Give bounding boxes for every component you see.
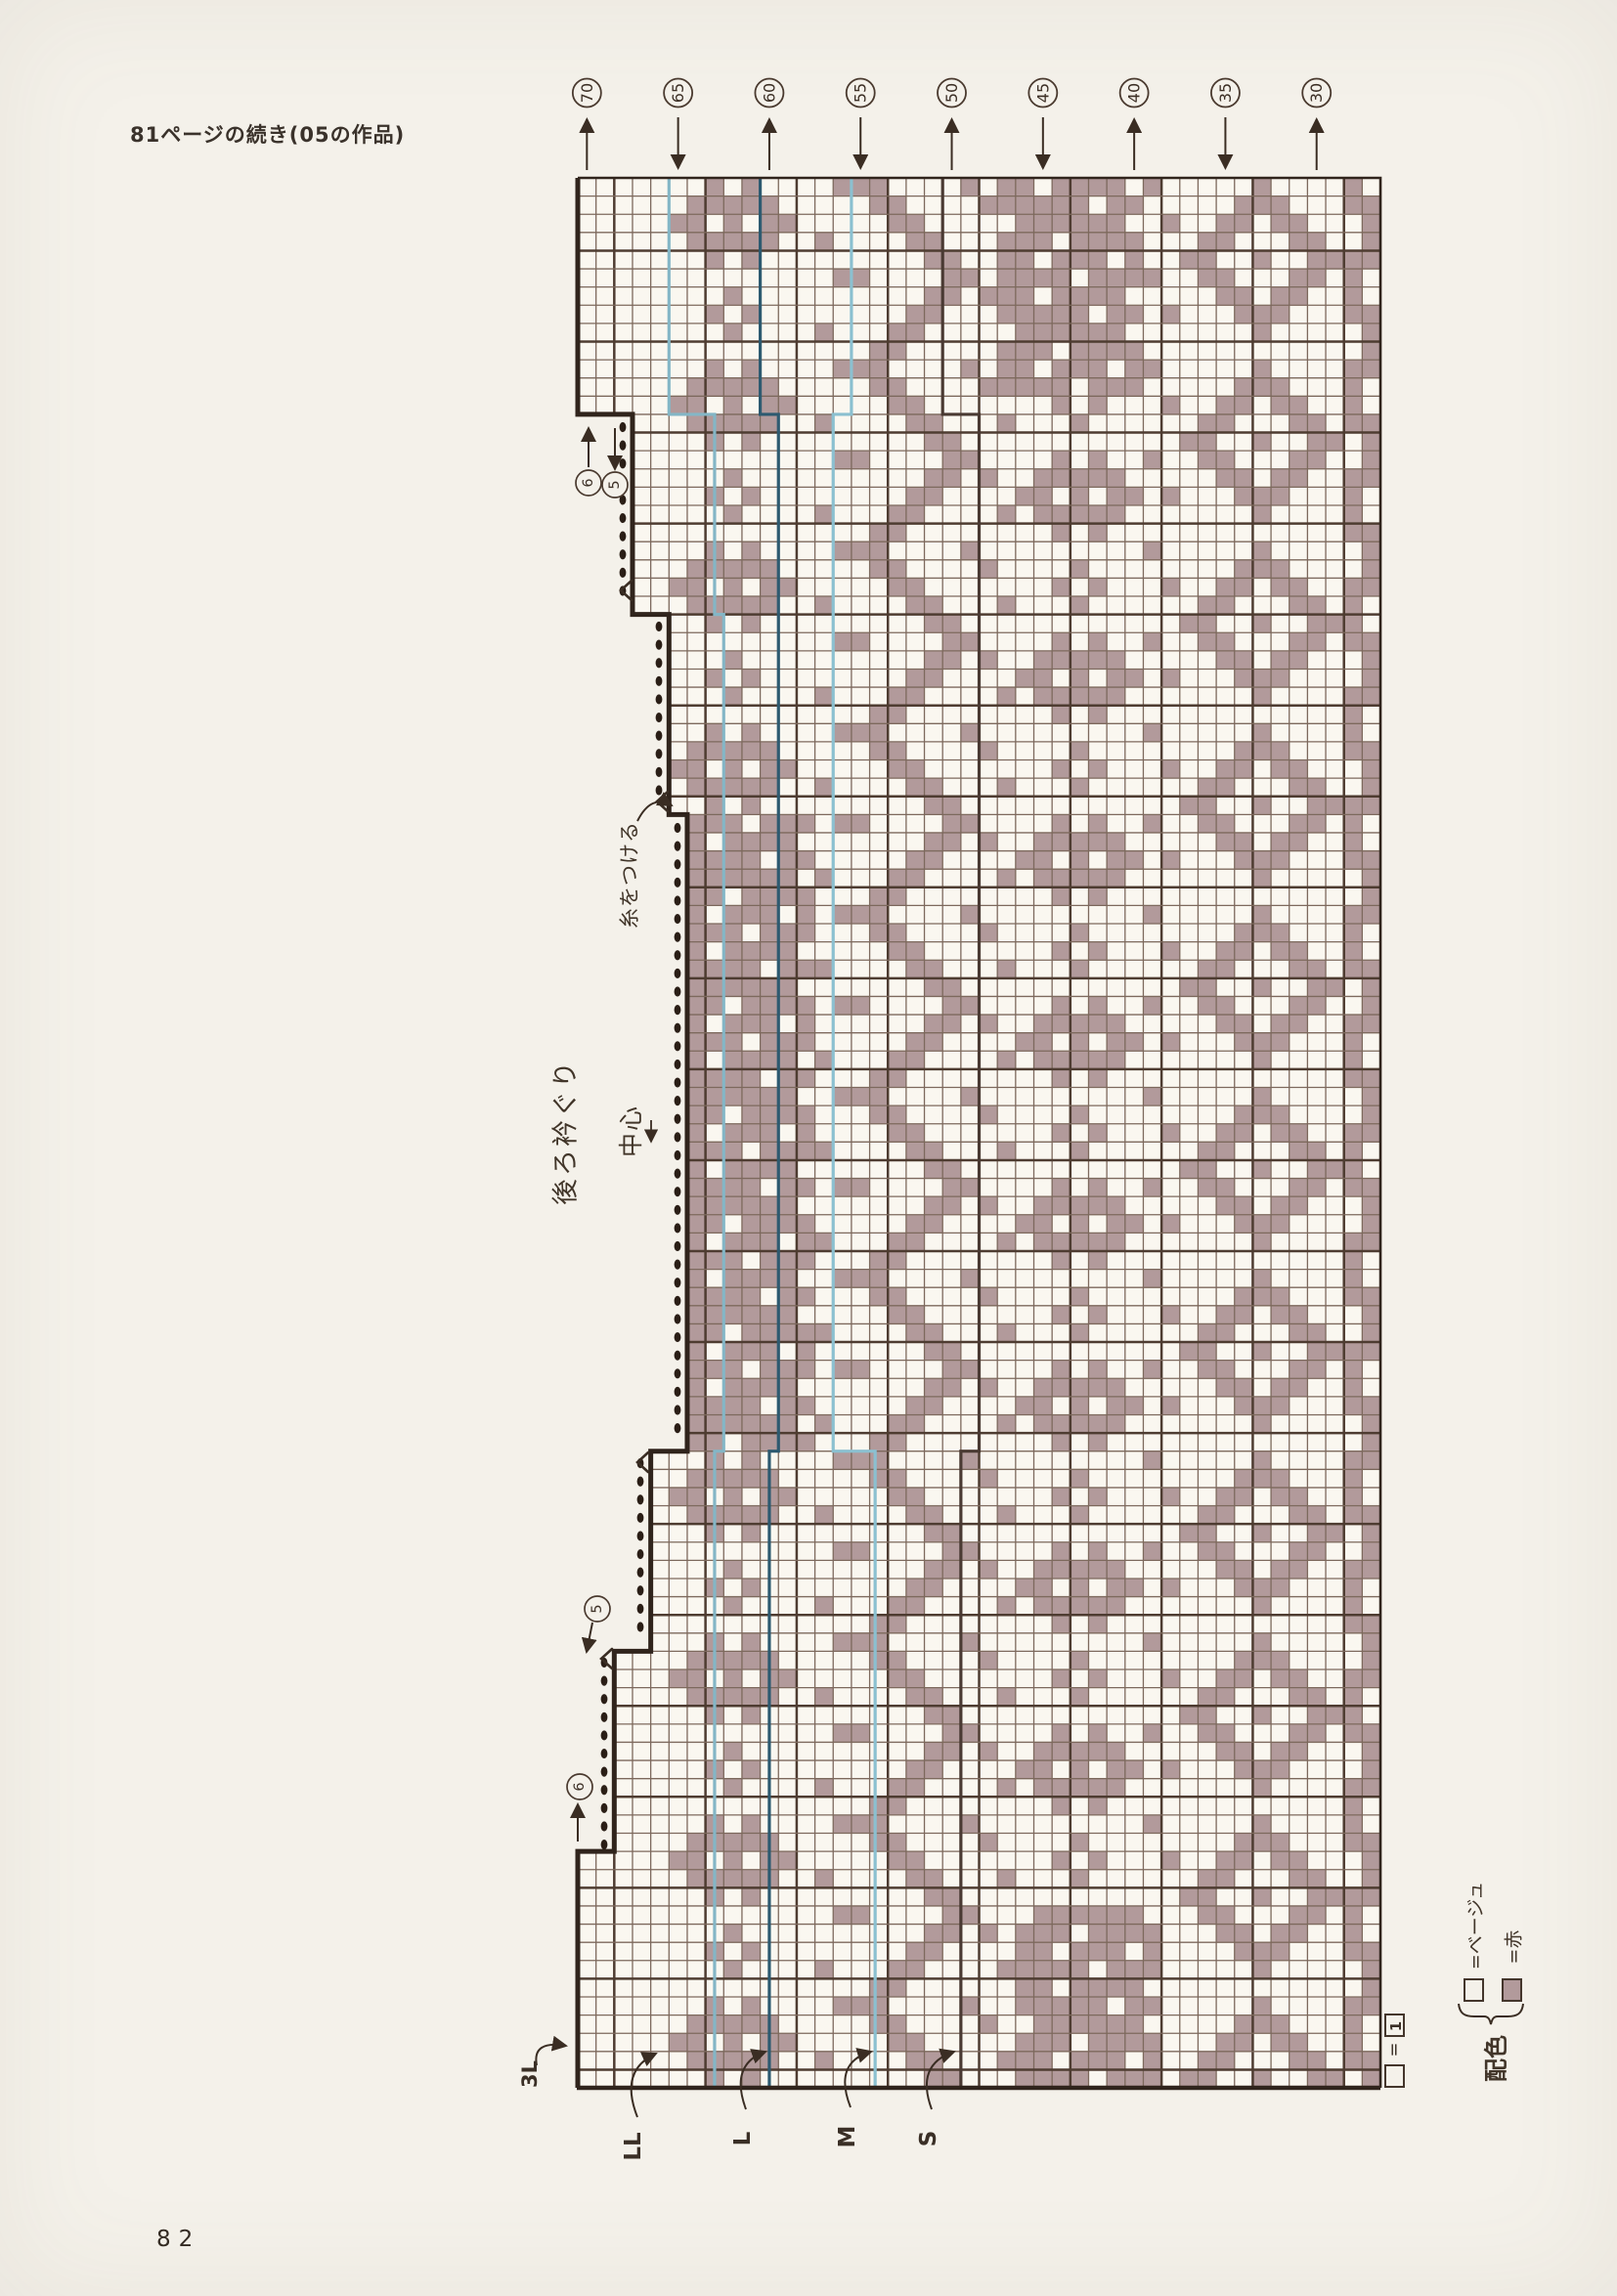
row-number-text: 30 bbox=[1307, 83, 1326, 103]
row-number-labels: 706560555045403530 bbox=[573, 79, 1331, 171]
legend-unit-one: 1 bbox=[1387, 2021, 1405, 2031]
row-number-text: 35 bbox=[1216, 83, 1235, 103]
label-size-ll: LL bbox=[621, 2132, 646, 2160]
legend-beige-label: =ベージュ bbox=[1462, 1882, 1488, 1970]
row-number-text: 55 bbox=[852, 83, 870, 103]
label-size-m: M bbox=[835, 2126, 860, 2148]
legend-beige-swatch bbox=[1464, 1978, 1484, 2002]
page-title: 81ページの続き(05の作品) bbox=[130, 119, 405, 149]
page-number: 82 bbox=[156, 2227, 200, 2252]
label-size-l: L bbox=[730, 2132, 756, 2146]
row-number-text: 45 bbox=[1033, 83, 1052, 103]
svg-text:5: 5 bbox=[590, 1604, 605, 1613]
label-size-s: S bbox=[916, 2131, 941, 2147]
row-number-text: 65 bbox=[669, 83, 687, 103]
legend-unit-box-one: 1 bbox=[1384, 2014, 1405, 2037]
row-number-text: 60 bbox=[760, 83, 778, 103]
svg-text:5: 5 bbox=[607, 480, 623, 489]
legend-title: 配色 bbox=[1477, 2035, 1511, 2082]
svg-text:6: 6 bbox=[572, 1782, 588, 1791]
label-size-3l: 3L bbox=[518, 2060, 542, 2088]
legend-brace bbox=[1459, 2004, 1523, 2024]
legend-red-label: =赤 bbox=[1500, 1930, 1526, 1965]
label-center: 中心 bbox=[612, 1105, 647, 1157]
scanned-knitting-page: 7065605550454035306556 81ページの続き(05の作品) 後… bbox=[0, 0, 1617, 2296]
row-number-text: 40 bbox=[1125, 83, 1144, 103]
row-number-text: 70 bbox=[578, 83, 596, 103]
label-attach-yarn: 糸をつける bbox=[614, 821, 643, 929]
svg-text:6: 6 bbox=[581, 478, 596, 487]
knitting-chart: 7065605550454035306556 bbox=[0, 0, 1617, 2296]
label-back-neckline: 後ろ衿ぐり bbox=[545, 1059, 583, 1205]
chart-area bbox=[542, 178, 1381, 2088]
legend-unit-equals: = bbox=[1384, 2042, 1405, 2057]
legend-unit-box-empty bbox=[1384, 2064, 1405, 2088]
row-number-text: 50 bbox=[942, 83, 961, 103]
legend-red-swatch bbox=[1502, 1978, 1522, 2002]
